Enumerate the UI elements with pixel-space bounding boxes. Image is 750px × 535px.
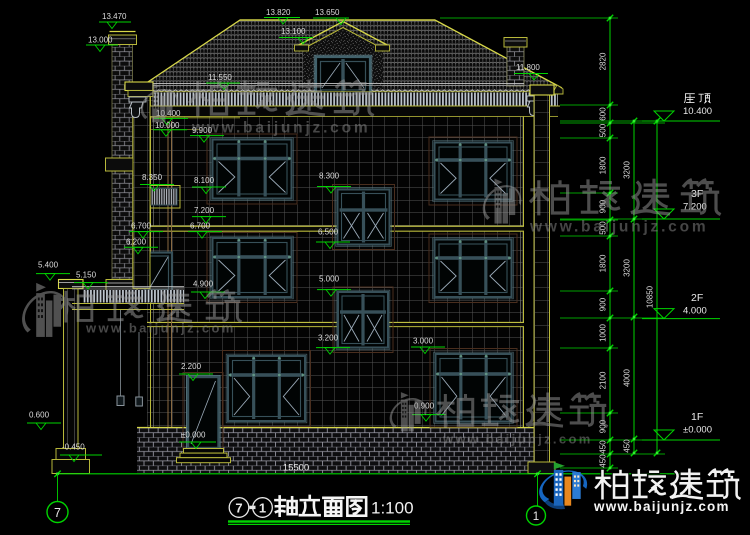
svg-text:0.600: 0.600 <box>29 411 50 420</box>
svg-text:4000: 4000 <box>623 369 632 387</box>
svg-text:450: 450 <box>599 440 608 454</box>
svg-text:1800: 1800 <box>599 156 608 174</box>
svg-text:1:100: 1:100 <box>371 499 414 518</box>
svg-text:10850: 10850 <box>646 285 655 308</box>
svg-text:www.baijunjz.com: www.baijunjz.com <box>593 499 730 514</box>
svg-text:7: 7 <box>235 501 242 516</box>
svg-text:5.000: 5.000 <box>319 275 340 284</box>
svg-text:www.baijunjz.com: www.baijunjz.com <box>85 321 236 336</box>
svg-text:2100: 2100 <box>599 371 608 389</box>
svg-text:13.650: 13.650 <box>315 8 340 17</box>
svg-text:5.150: 5.150 <box>76 271 97 280</box>
svg-text:3.000: 3.000 <box>413 337 434 346</box>
svg-text:1F: 1F <box>691 411 703 423</box>
svg-text:6.200: 6.200 <box>126 238 147 247</box>
svg-text:13.100: 13.100 <box>281 27 306 36</box>
svg-text:3200: 3200 <box>623 259 632 277</box>
svg-text:11.550: 11.550 <box>208 73 232 82</box>
svg-text:7: 7 <box>54 506 61 520</box>
svg-text:450: 450 <box>599 454 608 468</box>
svg-text:www.baijunjz.com: www.baijunjz.com <box>191 120 370 137</box>
svg-text:13.820: 13.820 <box>266 8 291 17</box>
svg-text:600: 600 <box>599 107 608 121</box>
svg-text:13.470: 13.470 <box>102 12 127 21</box>
svg-text:13.000: 13.000 <box>88 36 113 45</box>
svg-text:6.700: 6.700 <box>190 222 211 231</box>
svg-text:1800: 1800 <box>599 254 608 272</box>
svg-text:-0.450: -0.450 <box>62 443 85 452</box>
svg-text:10.400: 10.400 <box>683 106 712 117</box>
svg-text:±0.000: ±0.000 <box>683 425 712 436</box>
svg-text:450: 450 <box>623 439 632 453</box>
svg-text:4.000: 4.000 <box>683 306 707 317</box>
svg-text:www.baijunjz.com: www.baijunjz.com <box>529 219 708 236</box>
svg-text:8.300: 8.300 <box>319 172 340 181</box>
svg-text:www.baijunjz.com: www.baijunjz.com <box>442 432 593 447</box>
svg-text:4.900: 4.900 <box>193 280 214 289</box>
svg-text:2.200: 2.200 <box>181 362 202 371</box>
svg-text:1000: 1000 <box>599 324 608 342</box>
svg-text:2F: 2F <box>691 292 703 304</box>
svg-text:±0.000: ±0.000 <box>181 431 206 440</box>
svg-text:8.100: 8.100 <box>194 176 215 185</box>
svg-text:500: 500 <box>599 123 608 137</box>
svg-text:900: 900 <box>599 297 608 311</box>
svg-text:2820: 2820 <box>599 52 608 70</box>
svg-text:1: 1 <box>259 501 266 516</box>
svg-text:3200: 3200 <box>623 161 632 179</box>
svg-text:6.700: 6.700 <box>131 222 152 231</box>
svg-text:8.350: 8.350 <box>142 173 163 182</box>
svg-text:5.400: 5.400 <box>38 261 59 270</box>
svg-text:3.200: 3.200 <box>318 334 339 343</box>
svg-text:7.200: 7.200 <box>194 206 215 215</box>
svg-text:11.800: 11.800 <box>516 63 540 72</box>
svg-text:15500: 15500 <box>283 463 309 474</box>
svg-text:1: 1 <box>533 511 539 523</box>
svg-text:6.500: 6.500 <box>318 228 339 237</box>
